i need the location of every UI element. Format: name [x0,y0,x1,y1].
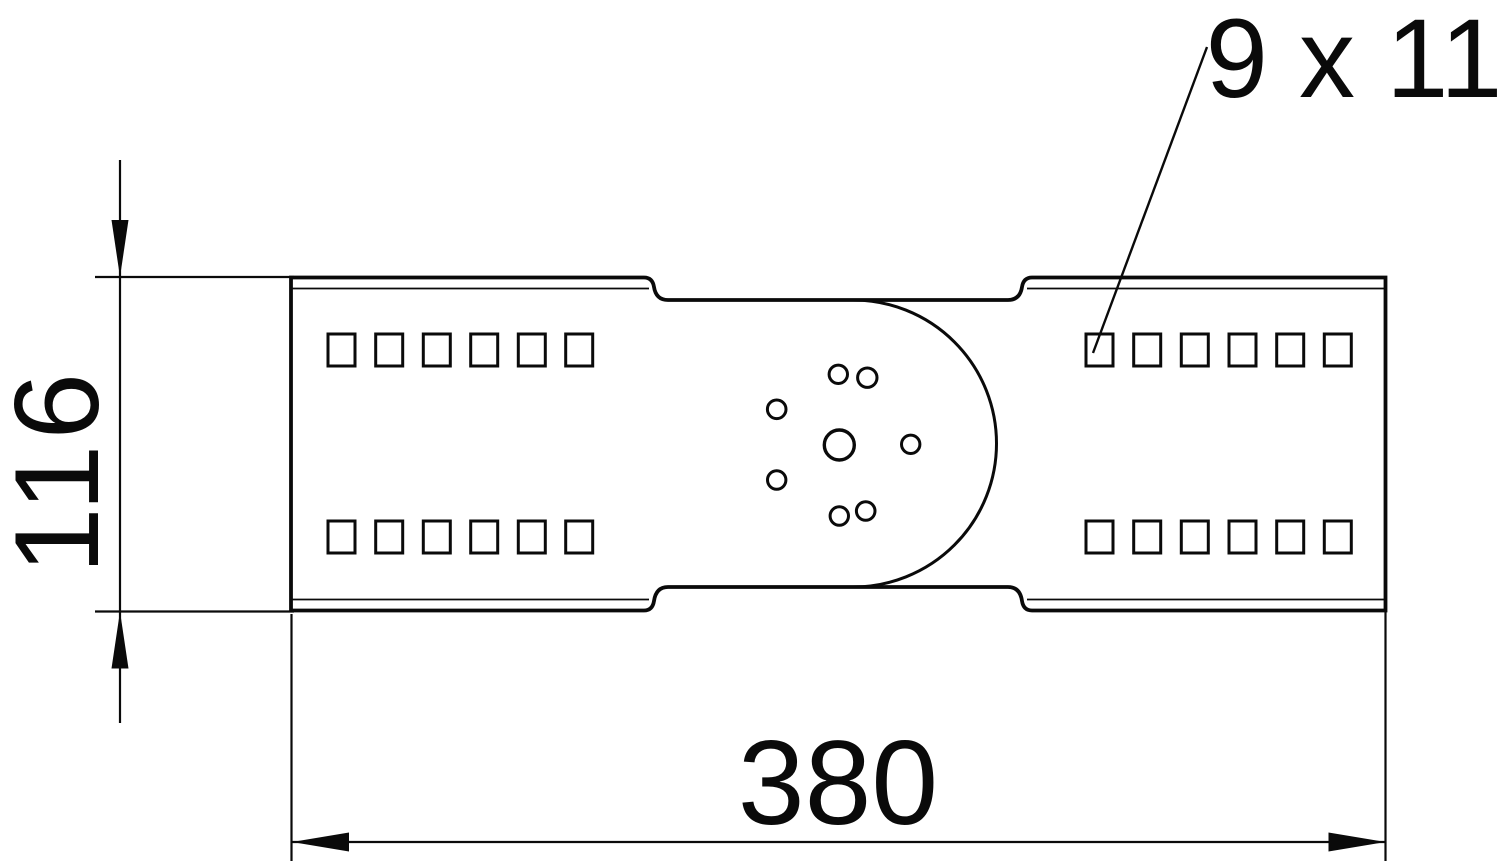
height-dim-label: 116 [0,368,124,574]
holes [767,365,920,525]
width-dim-label: 380 [738,716,938,850]
dimension-width-arrowhead [1329,833,1386,852]
slot-perforation [328,334,355,366]
slot-perforation [471,521,498,553]
slot-perforation [376,334,403,366]
slot-perforation [1324,521,1351,553]
dimension-width: 380 [292,612,1386,861]
pivot-hole [856,502,875,521]
pivot-hole [830,507,848,525]
slot-perforation [1277,521,1304,553]
technical-drawing-page: 116 380 9 x 11 [0,0,1500,867]
dimension-width-arrowhead [292,833,349,852]
slot-callout: 9 x 11 [1093,0,1500,353]
dimension-height-arrowhead [112,220,129,277]
dimension-height: 116 [0,160,294,723]
pivot-hole [902,435,920,453]
slot-perforation [1324,334,1351,366]
slot-perforation [1229,334,1256,366]
slot-perforation [376,521,403,553]
slot-callout-leader-line [1093,47,1207,353]
slot-perforation [423,521,450,553]
slot-perforation [1134,334,1161,366]
inner-edges [291,289,1386,600]
pivot-hole [829,365,847,383]
part-outline [291,278,1386,611]
slot-perforation [1229,521,1256,553]
pivot-hole [768,471,786,489]
pivot-hole [858,368,877,387]
drawing-canvas: 116 380 9 x 11 [0,0,1500,867]
slot-callout-label: 9 x 11 [1206,0,1500,121]
slot-perforation [518,521,545,553]
slot-perforation [1181,521,1208,553]
hinge-arc [853,300,997,587]
dimension-height-arrowhead [112,612,129,669]
slot-perforation [1086,521,1113,553]
slot-perforation [1181,334,1208,366]
slot-perforation [423,334,450,366]
slot-perforation [1134,521,1161,553]
pivot-hole [767,400,786,419]
slot-perforation [1277,334,1304,366]
slot-perforation [328,521,355,553]
slot-perforation [566,521,593,553]
slots [328,334,1351,553]
slot-perforation [471,334,498,366]
slot-perforation [566,334,593,366]
part-view [291,278,1386,611]
center-bolt-hole [824,430,854,460]
slot-perforation [518,334,545,366]
